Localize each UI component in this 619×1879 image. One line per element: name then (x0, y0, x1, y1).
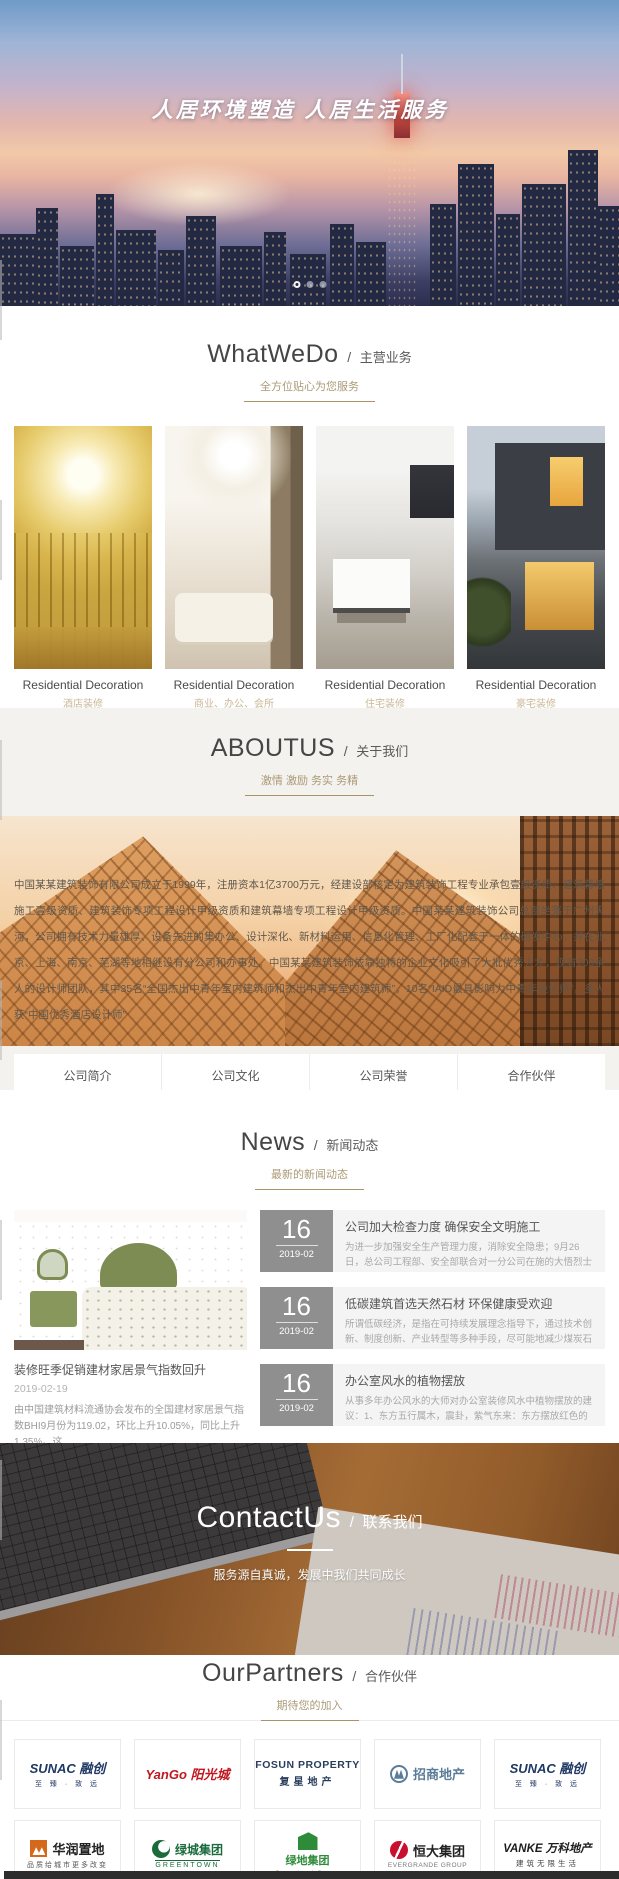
featured-news-title[interactable]: 装修旺季促销建材家居景气指数回升 (14, 1361, 247, 1378)
building (568, 150, 598, 306)
building (220, 246, 262, 306)
featured-news[interactable]: 装修旺季促销建材家居景气指数回升 2019-02-19 由中国建筑材料流通协会发… (14, 1210, 247, 1479)
card-title: Residential Decoration (316, 678, 454, 692)
section-title: OurPartners / 合作伙伴 (0, 1659, 619, 1688)
building (430, 204, 456, 306)
building (36, 208, 58, 306)
whatwedo-heading: WhatWeDo / 主营业务 全方位贴心为您服务 (0, 340, 619, 402)
news-item-excerpt: 为进一步加强安全生产管理力度，消除安全隐患；9月26日，总公司工程部、安全部联合… (345, 1240, 593, 1270)
hero-slogan: 人居环境塑造 人居生活服务 (152, 94, 449, 124)
partners-heading: OurPartners / 合作伙伴 期待您的加入 (0, 1659, 619, 1721)
section-title: ABOUTUS / 关于我们 (0, 734, 619, 763)
evergrande-logo-icon (390, 1841, 408, 1859)
company-intro-paragraph: 中国某某建筑装饰有限公司成立于1999年，注册资本1亿3700万元，经建设部核定… (14, 872, 605, 1028)
carousel-dot[interactable] (306, 281, 313, 288)
building (60, 246, 94, 306)
card-subtitle: 豪宅装修 (467, 695, 605, 710)
service-card-villa[interactable]: Residential Decoration 豪宅装修 (467, 426, 605, 710)
section-news: News / 新闻动态 最新的新闻动态 装修旺季促销建材家居景气指数回升 201… (0, 1090, 619, 1443)
news-body: 装修旺季促销建材家居景气指数回升 2019-02-19 由中国建筑材料流通协会发… (14, 1210, 605, 1479)
china-merchants-logo-icon (390, 1765, 408, 1783)
carousel-dot[interactable] (319, 281, 326, 288)
news-item-title[interactable]: 公司加大检查力度 确保安全文明施工 (345, 1218, 593, 1235)
service-card-residence[interactable]: Residential Decoration 住宅装修 (316, 426, 454, 710)
greentown-logo-icon (152, 1840, 170, 1858)
news-item[interactable]: 16 2019-02 低碳建筑首选天然石材 环保健康受欢迎 所谓低碳经济，是指在… (260, 1287, 605, 1349)
tab-company-honor[interactable]: 公司荣誉 (310, 1054, 458, 1090)
card-subtitle: 商业、办公、会所 (165, 695, 303, 710)
title-underline (287, 1549, 333, 1551)
hero-banner[interactable]: 人居环境塑造 人居生活服务 (0, 0, 619, 306)
news-date-badge: 16 2019-02 (260, 1364, 333, 1426)
card-title: Residential Decoration (14, 678, 152, 692)
section-contact-banner[interactable]: ContactUs / 联系我们 服务源自真诚，发展中我们共同成长 (0, 1443, 619, 1655)
about-tabs: 公司简介 公司文化 公司荣誉 合作伙伴 (14, 1054, 605, 1090)
building (96, 194, 114, 306)
section-title: News / 新闻动态 (0, 1128, 619, 1157)
building (158, 250, 184, 306)
building (522, 184, 566, 306)
about-heading: ABOUTUS / 关于我们 激情 激励 务实 务精 (0, 734, 619, 796)
tab-company-profile[interactable]: 公司简介 (14, 1054, 162, 1090)
section-what-we-do: WhatWeDo / 主营业务 全方位贴心为您服务 Residential De… (0, 306, 619, 708)
section-partners: OurPartners / 合作伙伴 期待您的加入 SUNAC 融创 至 臻 ·… (0, 1655, 619, 1879)
section-subtitle: 期待您的加入 (261, 1697, 359, 1721)
news-date-badge: 16 2019-02 (260, 1210, 333, 1272)
tab-company-culture[interactable]: 公司文化 (162, 1054, 310, 1090)
news-item[interactable]: 16 2019-02 公司加大检查力度 确保安全文明施工 为进一步加强安全生产管… (260, 1210, 605, 1272)
contact-heading: ContactUs / 联系我们 服务源自真诚，发展中我们共同成长 (0, 1443, 619, 1655)
building (116, 230, 156, 306)
partner-logo-yango[interactable]: YanGo 阳光城 (134, 1739, 241, 1809)
building (458, 164, 494, 306)
section-about-us: ABOUTUS / 关于我们 激情 激励 务实 务精 中国某某建筑装饰有限公司成… (0, 708, 619, 1090)
building (264, 232, 286, 306)
news-item-title[interactable]: 低碳建筑首选天然石材 环保健康受欢迎 (345, 1295, 593, 1312)
carousel-dot-active[interactable] (293, 281, 300, 288)
card-subtitle: 酒店装修 (14, 695, 152, 710)
building (290, 254, 326, 306)
spa-interior-image (165, 426, 303, 669)
partner-logo-sunac[interactable]: SUNAC 融创 至 臻 · 致 远 (494, 1739, 601, 1809)
building (496, 214, 520, 306)
featured-news-date: 2019-02-19 (14, 1383, 247, 1395)
house-exterior-image (467, 426, 605, 669)
card-subtitle: 住宅装修 (316, 695, 454, 710)
partner-logo-fosun[interactable]: FOSUN PROPERTY 复星地产 (254, 1739, 361, 1809)
building (598, 206, 619, 306)
about-company-image: 中国某某建筑装饰有限公司成立于1999年，注册资本1亿3700万元，经建设部核定… (0, 816, 619, 1046)
section-subtitle: 最新的新闻动态 (255, 1166, 364, 1190)
featured-news-image (14, 1210, 247, 1350)
news-heading: News / 新闻动态 最新的新闻动态 (0, 1128, 619, 1190)
hotel-lobby-image (14, 426, 152, 669)
news-list: 16 2019-02 公司加大检查力度 确保安全文明施工 为进一步加强安全生产管… (260, 1210, 605, 1479)
card-title: Residential Decoration (467, 678, 605, 692)
contact-slogan: 服务源自真诚，发展中我们共同成长 (0, 1566, 619, 1583)
carousel-dots (293, 281, 326, 288)
tab-company-partners[interactable]: 合作伙伴 (458, 1054, 605, 1090)
greenland-logo-icon (298, 1832, 318, 1850)
service-card-commercial[interactable]: Residential Decoration 商业、办公、会所 (165, 426, 303, 710)
section-title: ContactUs / 联系我们 (0, 1501, 619, 1536)
partner-logo-china-merchants[interactable]: 招商地产 (374, 1739, 481, 1809)
service-cards: Residential Decoration 酒店装修 Residential … (14, 426, 605, 710)
building (186, 216, 216, 306)
news-date-badge: 16 2019-02 (260, 1287, 333, 1349)
service-card-hotel[interactable]: Residential Decoration 酒店装修 (14, 426, 152, 710)
section-subtitle: 全方位贴心为您服务 (244, 378, 375, 402)
footer-bar (4, 1871, 619, 1879)
partner-logo-sunac[interactable]: SUNAC 融创 至 臻 · 致 远 (14, 1739, 121, 1809)
section-subtitle: 激情 激励 务实 务精 (245, 772, 374, 796)
building (0, 234, 40, 306)
china-resources-logo-icon (30, 1840, 47, 1857)
news-item[interactable]: 16 2019-02 办公室风水的植物摆放 从事多年办公风水的大师对办公室装修风… (260, 1364, 605, 1426)
news-item-excerpt: 所谓低碳经济，是指在可持续发展理念指导下，通过技术创新、制度创新、产业转型等多种… (345, 1317, 593, 1347)
building (330, 224, 354, 306)
news-item-excerpt: 从事多年办公风水的大师对办公室装修风水中植物摆放的建议：1、东方五行属木，震卦，… (345, 1394, 593, 1424)
card-title: Residential Decoration (165, 678, 303, 692)
partner-logo-grid: SUNAC 融创 至 臻 · 致 远 YanGo 阳光城 FOSUN PROPE… (14, 1739, 605, 1879)
section-title: WhatWeDo / 主营业务 (0, 340, 619, 369)
news-item-title[interactable]: 办公室风水的植物摆放 (345, 1372, 593, 1389)
kitchen-interior-image (316, 426, 454, 669)
